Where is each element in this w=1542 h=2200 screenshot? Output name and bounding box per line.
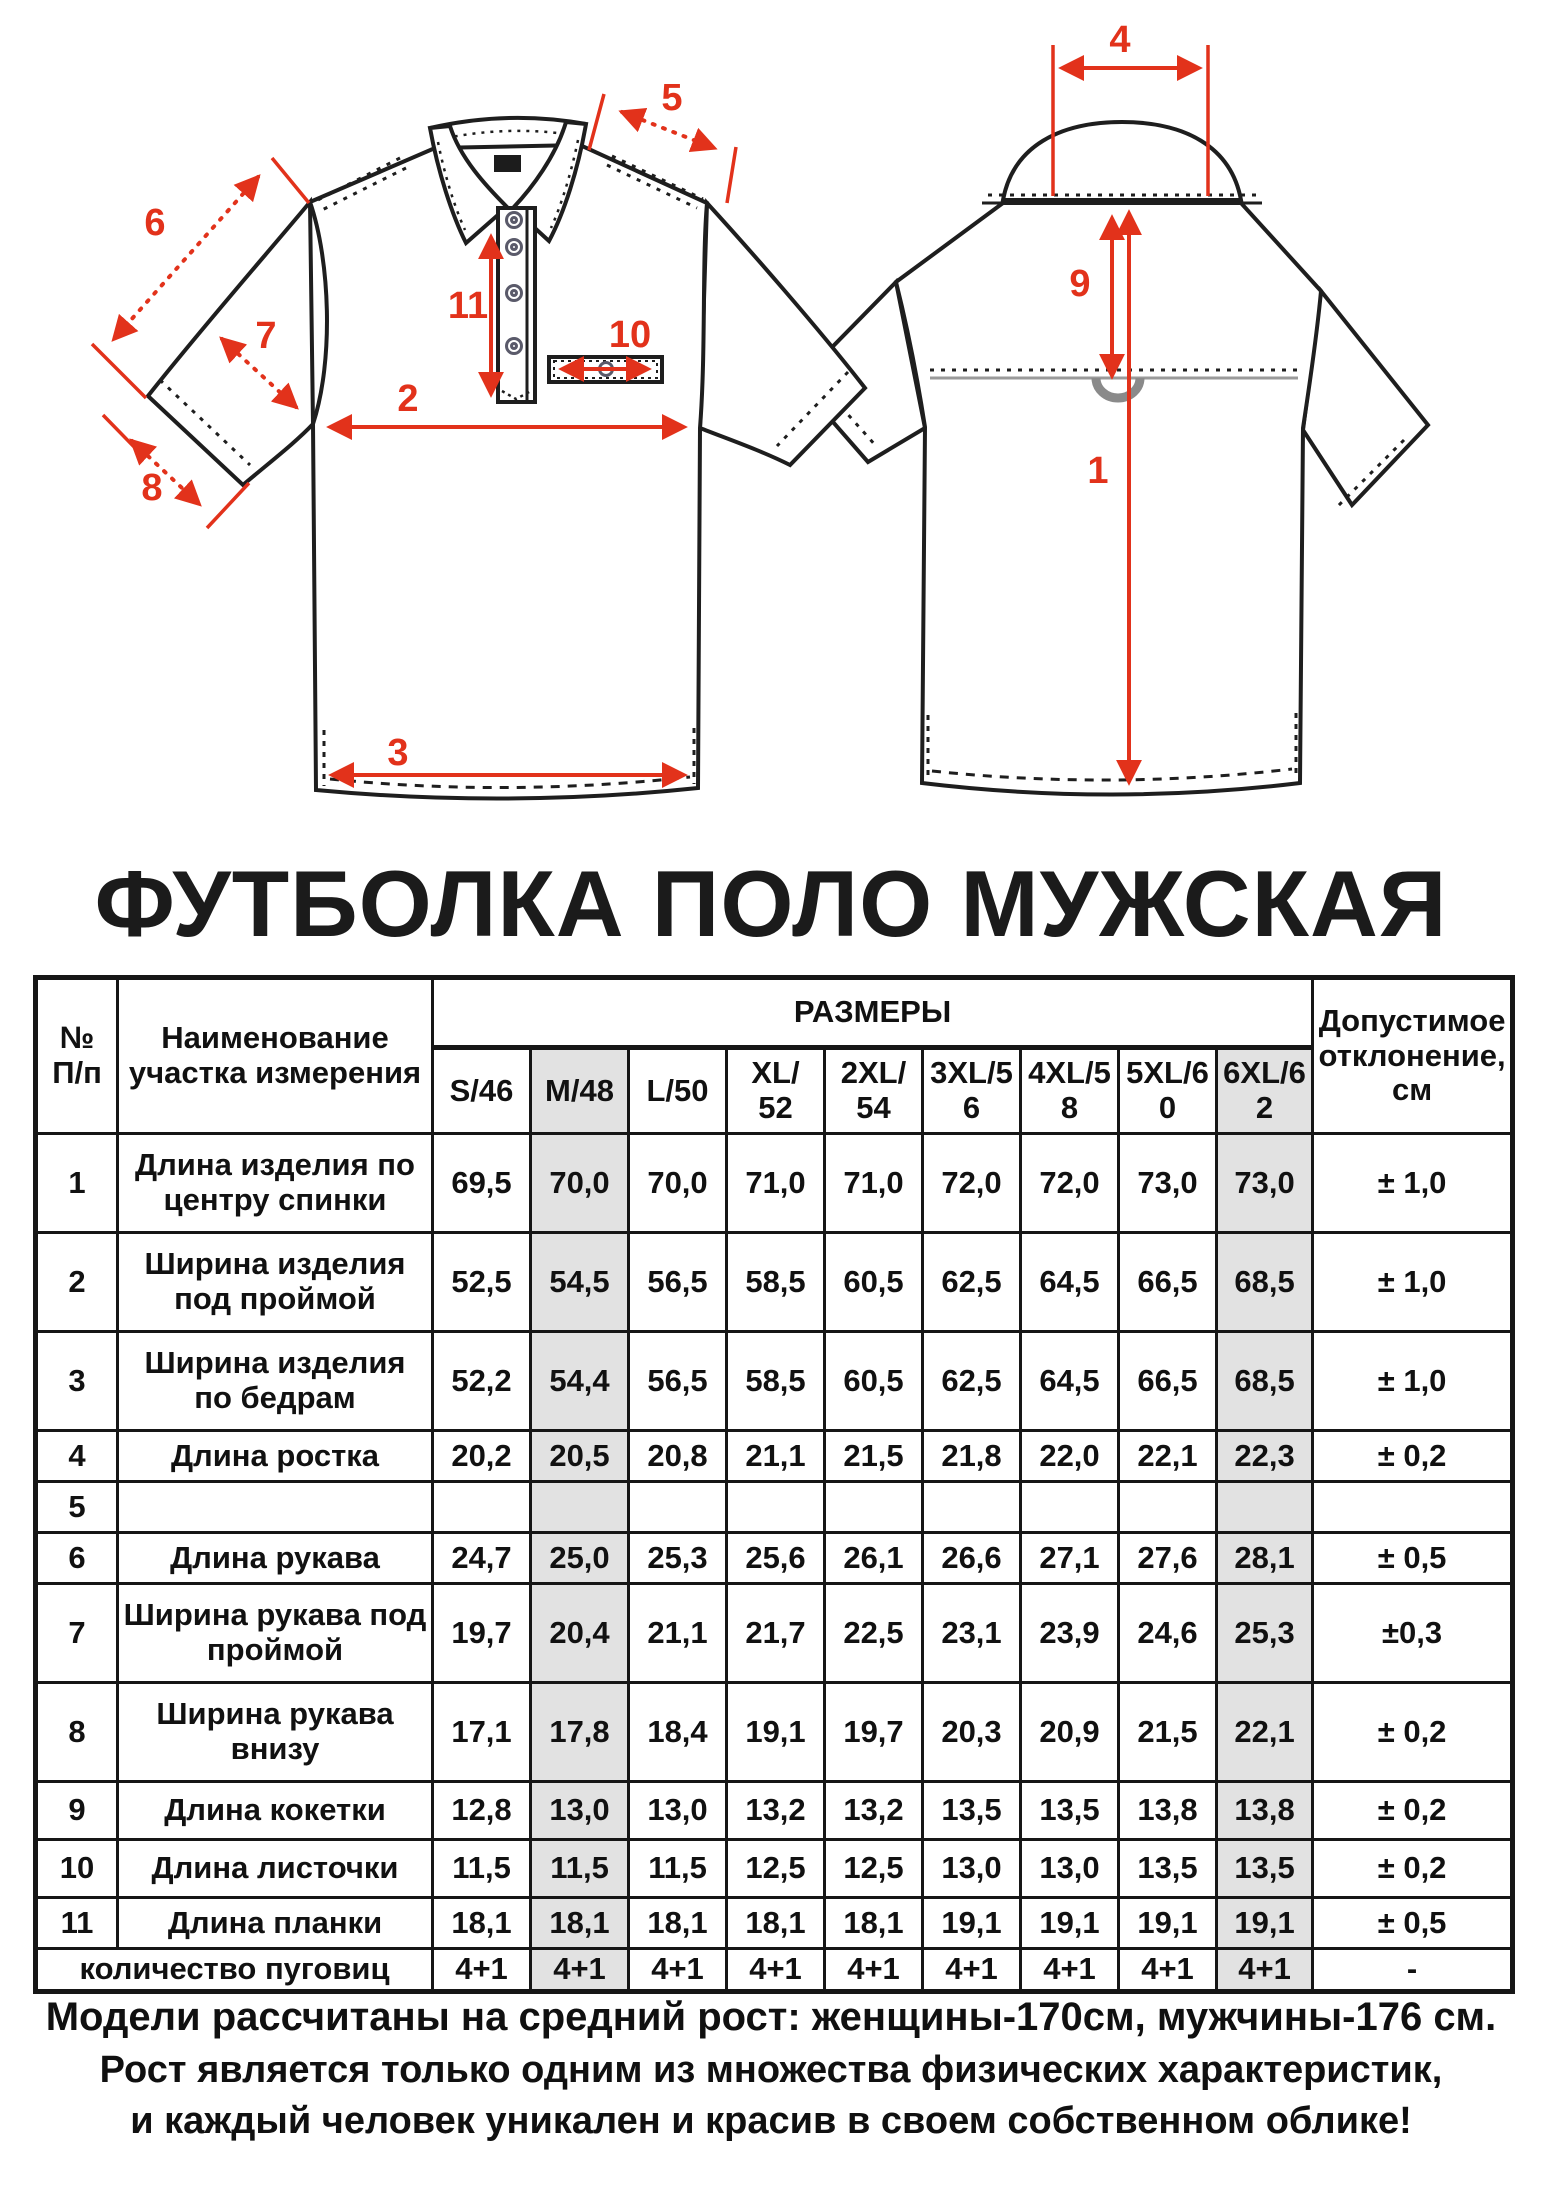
cell-name: Длина листочки [118, 1840, 433, 1898]
cell-num: 5 [36, 1482, 118, 1533]
cell-value: 23,9 [1021, 1584, 1119, 1683]
header-size: 5XL/6 0 [1119, 1048, 1217, 1134]
table-row: 10 Длина листочки 11,5 11,5 11,5 12,5 12… [36, 1840, 1513, 1898]
cell-value: 18,1 [727, 1898, 825, 1949]
placket-button-hole [512, 245, 517, 250]
table-row: 3 Ширина изделия по бедрам 52,2 54,4 56,… [36, 1332, 1513, 1431]
cell-tolerance: ± 1,0 [1313, 1332, 1513, 1431]
back-right-sleeve [1303, 291, 1428, 505]
cell-value: 73,0 [1217, 1134, 1313, 1233]
cell-value: 22,0 [1021, 1431, 1119, 1482]
measure-label-10: 10 [609, 314, 651, 356]
cell-value: 68,5 [1217, 1233, 1313, 1332]
footer-line-1: Модели рассчитаны на средний рост: женщи… [0, 1995, 1542, 2040]
cell-value: 20,8 [629, 1431, 727, 1482]
cell-value [1119, 1482, 1217, 1533]
cell-value: 13,5 [923, 1782, 1021, 1840]
placket-button-hole [512, 291, 517, 296]
cell-value: 19,7 [825, 1683, 923, 1782]
cell-value: 18,1 [433, 1898, 531, 1949]
measure-label-11: 11 [448, 285, 488, 327]
back-body [896, 203, 1321, 795]
footer-line-2: Рост является только одним из множества … [0, 2049, 1542, 2092]
cell-value: 19,1 [1119, 1898, 1217, 1949]
cell-value [629, 1482, 727, 1533]
cell-value: 21,1 [727, 1431, 825, 1482]
cell-value: 22,5 [825, 1584, 923, 1683]
cell-value: 21,7 [727, 1584, 825, 1683]
cell-value: 11,5 [531, 1840, 629, 1898]
page-title: ФУТБОЛКА ПОЛО МУЖСКАЯ [0, 850, 1542, 958]
header-name: Наименование участка измерения [118, 978, 433, 1134]
cell-value: 71,0 [825, 1134, 923, 1233]
cell-name: Длина кокетки [118, 1782, 433, 1840]
cell-value: 62,5 [923, 1233, 1021, 1332]
cell-name: Длина изделия по центру спинки [118, 1134, 433, 1233]
header-size: S/46 [433, 1048, 531, 1134]
cell-value: 4+1 [629, 1949, 727, 1992]
cell-value: 4+1 [1119, 1949, 1217, 1992]
header-size: XL/ 52 [727, 1048, 825, 1134]
cell-num: 7 [36, 1584, 118, 1683]
cell-tolerance: ± 1,0 [1313, 1134, 1513, 1233]
cell-value: 62,5 [923, 1332, 1021, 1431]
placket-button-hole [512, 344, 517, 349]
cell-value: 13,0 [629, 1782, 727, 1840]
front-left-sleeve [148, 202, 313, 485]
cell-value: 23,1 [923, 1584, 1021, 1683]
cell-value: 19,1 [923, 1898, 1021, 1949]
cell-num: 8 [36, 1683, 118, 1782]
polo-technical-drawing: 4 9 1 [0, 0, 1542, 830]
cell-value: 22,1 [1119, 1431, 1217, 1482]
cell-value: 4+1 [1021, 1949, 1119, 1992]
measure-label-8: 8 [141, 467, 162, 509]
cell-value: 17,8 [531, 1683, 629, 1782]
cell-value [1217, 1482, 1313, 1533]
cell-value [923, 1482, 1021, 1533]
cell-name: Ширина изделия под проймой [118, 1233, 433, 1332]
cell-value: 58,5 [727, 1332, 825, 1431]
cell-value: 4+1 [825, 1949, 923, 1992]
cell-value: 58,5 [727, 1233, 825, 1332]
cell-value: 72,0 [923, 1134, 1021, 1233]
cell-value: 64,5 [1021, 1233, 1119, 1332]
table-row: 7 Ширина рукава под проймой 19,7 20,4 21… [36, 1584, 1513, 1683]
cell-value [727, 1482, 825, 1533]
table-row: 5 [36, 1482, 1513, 1533]
table-row: 11 Длина планки 18,1 18,1 18,1 18,1 18,1… [36, 1898, 1513, 1949]
cell-value: 64,5 [1021, 1332, 1119, 1431]
cell-name [118, 1482, 433, 1533]
brand-label [494, 155, 521, 172]
collar-band-stitch [437, 131, 579, 140]
cell-value: 60,5 [825, 1233, 923, 1332]
cell-value: 4+1 [727, 1949, 825, 1992]
cell-value: 70,0 [629, 1134, 727, 1233]
cell-num: 10 [36, 1840, 118, 1898]
placket [498, 208, 535, 402]
cell-value: 71,0 [727, 1134, 825, 1233]
cell-value: 13,0 [923, 1840, 1021, 1898]
cell-value: 18,1 [531, 1898, 629, 1949]
cell-name: Ширина рукава внизу [118, 1683, 433, 1782]
cell-value: 66,5 [1119, 1332, 1217, 1431]
cell-tolerance: - [1313, 1949, 1513, 1992]
measure-label-3: 3 [387, 732, 408, 774]
cell-value: 19,1 [727, 1683, 825, 1782]
cell-tolerance: ± 0,5 [1313, 1533, 1513, 1584]
cell-tolerance: ± 0,2 [1313, 1431, 1513, 1482]
cell-value: 60,5 [825, 1332, 923, 1431]
cell-value: 52,5 [433, 1233, 531, 1332]
cell-value: 4+1 [531, 1949, 629, 1992]
cell-value: 20,4 [531, 1584, 629, 1683]
header-size: 3XL/5 6 [923, 1048, 1021, 1134]
header-size: 2XL/ 54 [825, 1048, 923, 1134]
cell-num: 6 [36, 1533, 118, 1584]
cell-value: 13,5 [1217, 1840, 1313, 1898]
table-row: 8 Ширина рукава внизу 17,1 17,8 18,4 19,… [36, 1683, 1513, 1782]
measure-label-9: 9 [1069, 263, 1090, 305]
cell-value: 54,4 [531, 1332, 629, 1431]
cell-value: 70,0 [531, 1134, 629, 1233]
cell-value: 28,1 [1217, 1533, 1313, 1584]
cell-value: 13,0 [1021, 1840, 1119, 1898]
cell-num: 1 [36, 1134, 118, 1233]
cell-tolerance: ± 0,5 [1313, 1898, 1513, 1949]
cell-tolerance: ± 0,2 [1313, 1840, 1513, 1898]
cell-num: 3 [36, 1332, 118, 1431]
cell-value: 19,7 [433, 1584, 531, 1683]
header-tolerance: Допустимое отклонение, см [1313, 978, 1513, 1134]
cell-value: 26,6 [923, 1533, 1021, 1584]
table-row-buttons: количество пуговиц 4+1 4+1 4+1 4+1 4+1 4… [36, 1949, 1513, 1992]
cell-value: 21,8 [923, 1431, 1021, 1482]
placket-button-hole [512, 218, 517, 223]
cell-value: 56,5 [629, 1233, 727, 1332]
cell-name: Ширина рукава под проймой [118, 1584, 433, 1683]
cell-value: 11,5 [629, 1840, 727, 1898]
polo-front-view [148, 118, 865, 799]
measure-label-1: 1 [1087, 450, 1108, 492]
cell-value: 24,6 [1119, 1584, 1217, 1683]
cell-value: 13,0 [531, 1782, 629, 1840]
cell-value [433, 1482, 531, 1533]
cell-name: Длина ростка [118, 1431, 433, 1482]
cell-value: 21,5 [825, 1431, 923, 1482]
cell-value: 22,1 [1217, 1683, 1313, 1782]
footer-line-3: и каждый человек уникален и красив в сво… [0, 2100, 1542, 2143]
cell-value: 66,5 [1119, 1233, 1217, 1332]
size-chart-sheet: 4 9 1 [0, 0, 1542, 2200]
cell-value: 17,1 [433, 1683, 531, 1782]
cell-value: 21,1 [629, 1584, 727, 1683]
cell-value: 27,1 [1021, 1533, 1119, 1584]
cell-value: 4+1 [923, 1949, 1021, 1992]
cell-tolerance: ±0,3 [1313, 1584, 1513, 1683]
cell-value [1021, 1482, 1119, 1533]
cell-value: 68,5 [1217, 1332, 1313, 1431]
cell-value: 27,6 [1119, 1533, 1217, 1584]
cell-value: 20,9 [1021, 1683, 1119, 1782]
measure-label-2: 2 [397, 378, 418, 420]
cell-value: 19,1 [1217, 1898, 1313, 1949]
table-header-row-1: №П/п Наименование участка измерения РАЗМ… [36, 978, 1513, 1048]
header-size: L/50 [629, 1048, 727, 1134]
cell-num: 11 [36, 1898, 118, 1949]
cell-num: 2 [36, 1233, 118, 1332]
header-size: 6XL/6 2 [1217, 1048, 1313, 1134]
cell-value: 12,8 [433, 1782, 531, 1840]
cell-value: 13,5 [1021, 1782, 1119, 1840]
cell-value: 12,5 [825, 1840, 923, 1898]
cell-value [531, 1482, 629, 1533]
cell-value: 56,5 [629, 1332, 727, 1431]
cell-value: 13,2 [825, 1782, 923, 1840]
measure-label-5: 5 [661, 77, 682, 119]
cell-tolerance: ± 1,0 [1313, 1233, 1513, 1332]
cell-value: 24,7 [433, 1533, 531, 1584]
cell-value: 13,5 [1119, 1840, 1217, 1898]
cell-value: 25,0 [531, 1533, 629, 1584]
cell-value: 20,5 [531, 1431, 629, 1482]
cell-value: 4+1 [433, 1949, 531, 1992]
table-row: 9 Длина кокетки 12,8 13,0 13,0 13,2 13,2… [36, 1782, 1513, 1840]
cell-tolerance [1313, 1482, 1513, 1533]
cell-value: 12,5 [727, 1840, 825, 1898]
cell-value: 18,1 [825, 1898, 923, 1949]
back-collar [1003, 122, 1241, 200]
header-sizes: РАЗМЕРЫ [433, 978, 1313, 1048]
cell-value [825, 1482, 923, 1533]
size-table: №П/п Наименование участка измерения РАЗМ… [33, 975, 1515, 1994]
cell-value: 52,2 [433, 1332, 531, 1431]
measure-label-4: 4 [1109, 19, 1130, 61]
cell-value: 22,3 [1217, 1431, 1313, 1482]
cell-value: 13,8 [1119, 1782, 1217, 1840]
measure-label-7: 7 [255, 315, 276, 357]
header-num: №П/п [36, 978, 118, 1134]
footer-note: Модели рассчитаны на средний рост: женщи… [0, 1995, 1542, 2151]
cell-value: 19,1 [1021, 1898, 1119, 1949]
header-size: 4XL/5 8 [1021, 1048, 1119, 1134]
cell-name: количество пуговиц [36, 1949, 433, 1992]
cell-name: Длина рукава [118, 1533, 433, 1584]
cell-value: 73,0 [1119, 1134, 1217, 1233]
cell-num: 4 [36, 1431, 118, 1482]
cell-value: 26,1 [825, 1533, 923, 1584]
cell-value: 4+1 [1217, 1949, 1313, 1992]
cell-value: 13,2 [727, 1782, 825, 1840]
measure-label-6: 6 [144, 202, 165, 244]
table-row: 2 Ширина изделия под проймой 52,5 54,5 5… [36, 1233, 1513, 1332]
cell-value: 25,6 [727, 1533, 825, 1584]
cell-value: 20,2 [433, 1431, 531, 1482]
cell-value: 21,5 [1119, 1683, 1217, 1782]
cell-value: 11,5 [433, 1840, 531, 1898]
cell-value: 20,3 [923, 1683, 1021, 1782]
cell-value: 69,5 [433, 1134, 531, 1233]
cell-value: 54,5 [531, 1233, 629, 1332]
cell-value: 72,0 [1021, 1134, 1119, 1233]
cell-num: 9 [36, 1782, 118, 1840]
cell-name: Ширина изделия по бедрам [118, 1332, 433, 1431]
cell-name: Длина планки [118, 1898, 433, 1949]
cell-value: 25,3 [629, 1533, 727, 1584]
cell-tolerance: ± 0,2 [1313, 1782, 1513, 1840]
cell-tolerance: ± 0,2 [1313, 1683, 1513, 1782]
cell-value: 13,8 [1217, 1782, 1313, 1840]
table-row: 4 Длина ростка 20,2 20,5 20,8 21,1 21,5 … [36, 1431, 1513, 1482]
cell-value: 18,4 [629, 1683, 727, 1782]
cell-value: 25,3 [1217, 1584, 1313, 1683]
header-size: M/48 [531, 1048, 629, 1134]
cell-value: 18,1 [629, 1898, 727, 1949]
table-row: 1 Длина изделия по центру спинки 69,5 70… [36, 1134, 1513, 1233]
table-row: 6 Длина рукава 24,7 25,0 25,3 25,6 26,1 … [36, 1533, 1513, 1584]
